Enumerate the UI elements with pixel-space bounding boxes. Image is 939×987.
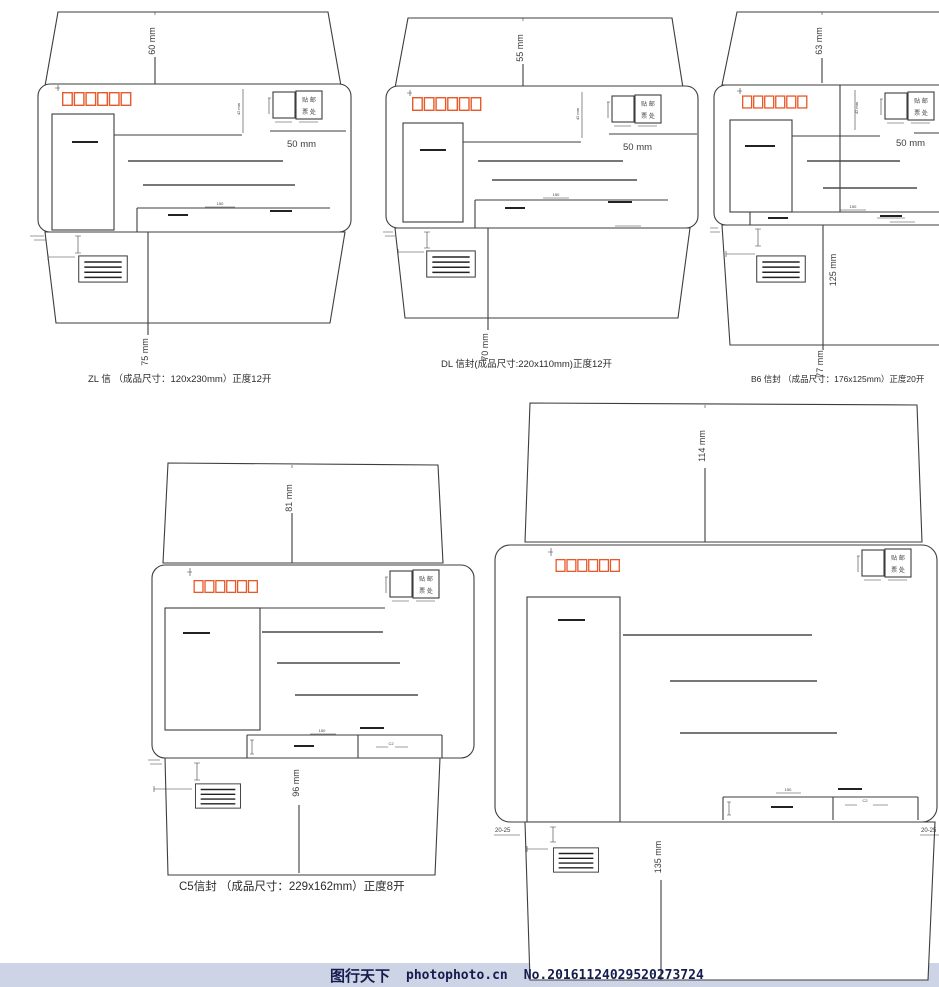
glue-margin-right: 20-25: [920, 828, 939, 835]
top-flap-dim-label: 63 mm: [814, 27, 824, 55]
stamp-width-label: 50 mm: [896, 138, 925, 149]
bottom-flap-dim-label: 135 mm: [653, 841, 663, 874]
envelope-dl-diagram: 55 mm 42 mm 50 mm 150: [383, 12, 703, 367]
bottom-flap-dimension: 75 mm: [140, 323, 150, 366]
top-flap-dim-label: 81 mm: [284, 484, 294, 512]
stamp-width-label: 50 mm: [287, 139, 316, 150]
bottom-flap: [525, 822, 935, 980]
watermark-label: 图行天下 photophoto.cn No.201611240295202737…: [330, 963, 704, 987]
watermark-serial: No.20161124029520273724: [524, 968, 704, 983]
top-flap-dim-label: 60 mm: [147, 27, 157, 55]
bottom-flap-dimension: 70 mm: [480, 318, 490, 361]
stamp-height-label: 42 mm: [854, 101, 859, 114]
bottom-flap-dim-label: 96 mm: [291, 769, 301, 797]
envelope-c5-diagram: 81 mm 150 C2 96 mm: [148, 453, 483, 885]
strip-dim-label: 150: [785, 787, 792, 792]
envelope-zl-diagram: 60 mm 42 mm 50 mm 150: [30, 5, 360, 385]
strip-dim-label: 150: [319, 728, 326, 733]
front-panel: [710, 85, 939, 232]
front-panel: [30, 84, 351, 240]
strip-dim-label: 150: [850, 204, 857, 209]
stamp-height-label: 42 mm: [575, 107, 580, 120]
top-flap-dim-label: 55 mm: [515, 34, 525, 62]
front-panel: [495, 545, 937, 822]
envelope-c4-diagram: 114 mm 150 C2 20-25 2: [493, 398, 939, 987]
stamp-height-label: 42 mm: [236, 102, 241, 115]
strip-dim-label: 150: [217, 201, 224, 206]
top-flap: [722, 12, 939, 85]
top-flap: [163, 463, 443, 563]
strip-dim-label: 150: [553, 192, 560, 197]
top-flap: [395, 18, 683, 88]
watermark-site: photophoto.cn: [406, 968, 508, 983]
watermark-brand: 图行天下: [330, 965, 390, 986]
dl-caption: DL 信封(成品尺寸:220x110mm)正度12开: [441, 356, 612, 370]
top-flap: [45, 12, 341, 86]
glue-margin-left: 20-25: [494, 828, 520, 835]
zl-caption: ZL 信 （成品尺寸：120x230mm）正度12开: [88, 371, 271, 385]
strip-dim2-label: C2: [862, 798, 868, 803]
glue-left-label: 20-25: [495, 828, 511, 834]
bottom-flap-dim-label: 75 mm: [140, 338, 150, 366]
top-flap-dim-label: 114 mm: [697, 430, 707, 462]
strip-dim2-label: C2: [388, 741, 394, 746]
c5-caption: C5信封 （成品尺寸：229x162mm）正度8开: [179, 878, 405, 894]
glue-right-label: 20-25: [921, 828, 937, 834]
envelope-dieline-sheet: 贴 邮 票 处 60 mm: [0, 0, 939, 987]
stamp-width-label: 50 mm: [623, 142, 652, 153]
inner-flap-dim-label: 125 mm: [828, 254, 838, 287]
envelope-b6-diagram: 63 mm 42 mm 50 mm 150: [710, 8, 939, 380]
b6-caption: B6 信封 （成品尺寸：176x125mm）正度20开: [751, 373, 924, 385]
top-flap: [525, 403, 922, 542]
